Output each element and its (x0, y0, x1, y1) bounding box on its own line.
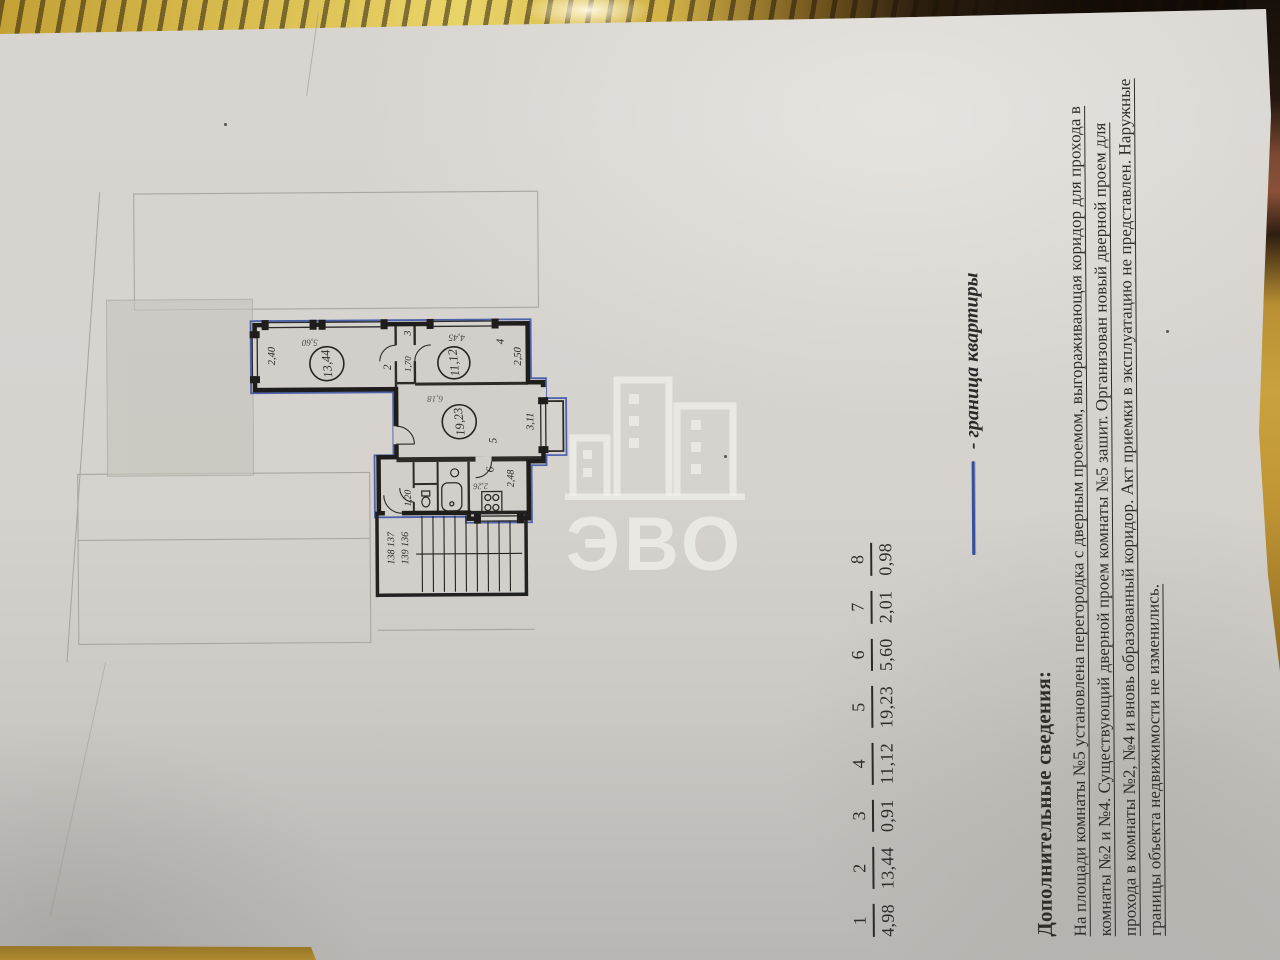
blue-boundary-line-sample (972, 461, 976, 555)
room3-width-dim: 1,70 (403, 356, 413, 372)
room-area-value: 19,23 (873, 686, 897, 728)
document-content-rotated: 138 137 139 136 (0, 0, 1277, 958)
hall-width-dim: 1,20 (404, 490, 414, 507)
apartment-boundary-legend: - граница квартиры (960, 272, 985, 555)
room-area-value: 11,12 (873, 743, 897, 785)
area-fraction-5: 5 19,23 (848, 686, 897, 728)
room-index: 4 (849, 743, 874, 785)
room2-width-dim: 2,40 (267, 346, 278, 365)
additional-information-line: границы объекта недвижимости не изменили… (1137, 31, 1168, 936)
room-area-value: 2,01 (872, 591, 896, 624)
area-fraction-3: 3 0,91 (849, 799, 898, 832)
area-fraction-2: 2 13,44 (849, 847, 898, 889)
room-index: 1 (850, 904, 875, 937)
room4-width-dim: 2,50 (513, 346, 524, 365)
balcony (546, 401, 563, 451)
room4-number: 4 (495, 338, 507, 344)
room-area-table: 1 4,98 2 13,44 3 0,91 4 11,12 5 19,23 6 … (847, 528, 898, 937)
room-area-value: 13,44 (874, 847, 898, 889)
area-fraction-7: 7 2,01 (847, 591, 896, 624)
area-fraction-4: 4 11,12 (849, 743, 898, 785)
additional-information-block: Дополнительные сведения: На площади комн… (1027, 31, 1168, 937)
room-area-value: 0,91 (874, 799, 898, 832)
room-area-value: 0,98 (872, 543, 896, 576)
room5-length-dim: 6,18 (427, 394, 443, 404)
shaded-adjacent-area (106, 299, 253, 476)
room-index: 6 (848, 638, 873, 671)
room4-length-dim: 4,45 (448, 332, 465, 342)
room2-number: 2 (382, 364, 394, 370)
kitchen-number: 6 (485, 466, 497, 472)
stair-landing-apartment-numbers-line2: 139 136 (400, 532, 411, 565)
room5-number: 5 (487, 437, 499, 443)
kitchen-length-dim: 2,26 (472, 482, 488, 492)
room-index: 2 (849, 847, 874, 889)
area-fraction-6: 6 5,60 (848, 638, 897, 671)
room2-length-dim: 5,60 (301, 338, 317, 348)
room-index: 3 (849, 799, 874, 832)
room-index: 7 (847, 591, 872, 624)
floor-plan-drawing: 138 137 139 136 (62, 179, 585, 663)
kitchen-width-dim: 2,48 (506, 470, 517, 488)
room-index: 5 (848, 686, 873, 728)
area-fraction-8: 8 0,98 (847, 543, 896, 576)
additional-information-title: Дополнительные сведения: (1027, 32, 1058, 937)
apartment-floor-fill (255, 323, 544, 520)
room-area-value: 5,60 (872, 638, 896, 671)
room-area-value: 4,98 (874, 904, 898, 937)
stair-landing-apartment-numbers-line1: 138 137 (386, 531, 397, 565)
room5-width-dim: 3,11 (525, 412, 536, 431)
legend-label: - граница квартиры (960, 272, 984, 449)
room-index: 8 (847, 543, 872, 576)
area-fraction-1: 1 4,98 (850, 904, 899, 937)
photo-of-floor-plan-document: 138 137 139 136 (0, 0, 1280, 960)
